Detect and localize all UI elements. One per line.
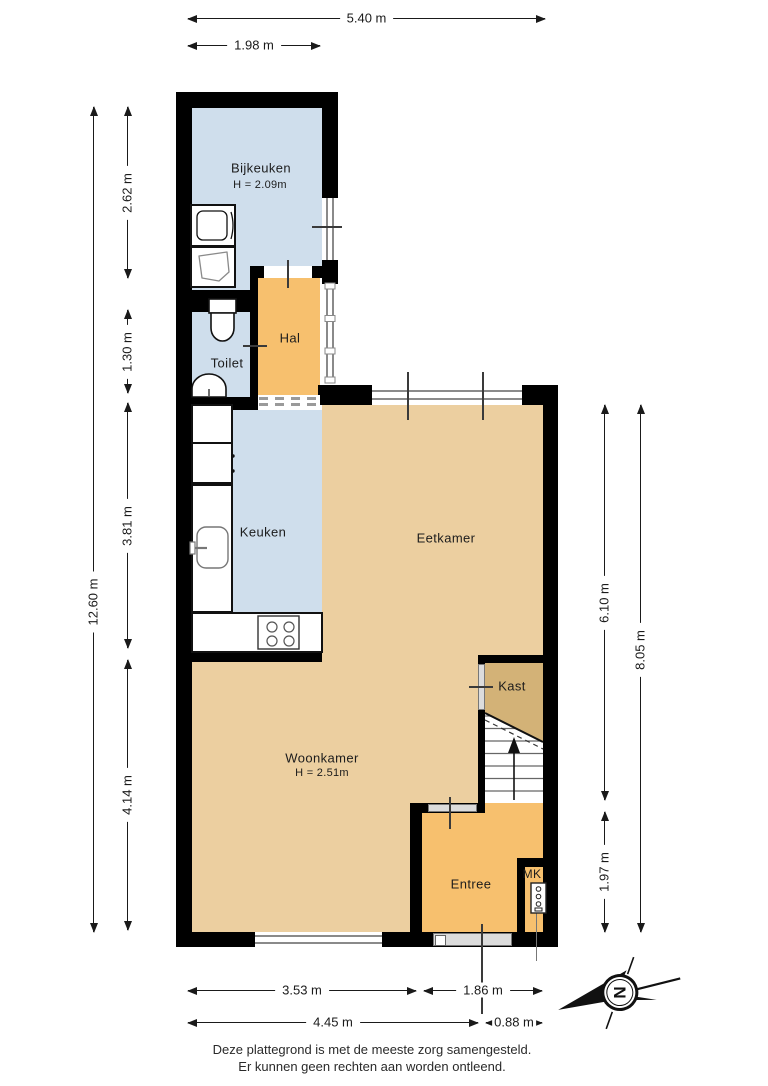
room-label-woonkamer: Woonkamer [285,751,358,766]
door-mullions [325,283,335,383]
arrow-down-icon [601,791,609,801]
arrow-right-icon [533,987,543,995]
fixtures-layer [0,0,768,1086]
arrow-down-icon [124,269,132,279]
room-label-toilet: Toilet [211,356,244,371]
arrow-down-icon [124,921,132,931]
arrow-right-icon [536,15,546,23]
arrow-left-icon [423,987,433,995]
arrow-down-icon [124,384,132,394]
dim-left-bijkeuken: 2.62 m [127,107,128,278]
arrow-up-icon [637,404,645,414]
dim-label: 1.86 m [456,983,510,998]
dim-label: 1.30 m [120,325,135,379]
arrow-up-icon [90,106,98,116]
room-label-eetkamer: Eetkamer [417,531,476,546]
dim-label: 8.05 m [633,623,648,677]
dim-label: 3.53 m [275,983,329,998]
dim-bottom-total: 4.45 m [188,1022,478,1023]
arrow-right-icon [311,42,321,50]
dim-label: 6.10 m [597,576,612,630]
arrow-down-icon [124,639,132,649]
arrow-up-icon [124,402,132,412]
arrow-up-icon [124,106,132,116]
room-label-bijkeuken: Bijkeuken [231,161,291,176]
dim-left-woonkamer: 4.14 m [127,660,128,930]
arrow-left-icon [187,15,197,23]
dim-right-eetkamer: 6.10 m [604,405,605,800]
room-label-kast: Kast [498,679,526,694]
arrow-down-icon [601,923,609,933]
dim-label: 1.98 m [227,38,281,53]
arrow-right-icon [407,987,417,995]
dim-left-total: 12.60 m [93,107,94,932]
dim-label: 1.97 m [597,845,612,899]
compass-rose: N [552,948,692,1038]
dim-label: 4.14 m [120,768,135,822]
disclaimer-line-2: Er kunnen geen rechten aan worden ontlee… [238,1059,505,1074]
dim-label: 12.60 m [86,572,101,633]
room-label-entree: Entree [451,877,492,892]
compass-north-label: N [610,986,629,998]
arrow-up-icon [601,811,609,821]
dim-top-total: 5.40 m [188,18,545,19]
arrow-up-icon [124,309,132,319]
arrow-left-icon [187,1019,197,1027]
dim-right-total: 8.05 m [640,405,641,932]
room-label-keuken: Keuken [240,525,287,540]
dim-left-keuken: 3.81 m [127,403,128,648]
toilet-fixture [209,299,236,341]
room-label-mk: MK [523,867,542,881]
dim-label: 3.81 m [120,499,135,553]
dim-label: 2.62 m [120,166,135,220]
dim-top-annex: 1.98 m [188,45,320,46]
dim-label: 5.40 m [340,11,394,26]
dim-left-toilet: 1.30 m [127,310,128,393]
stove-fixture [258,616,299,649]
washing-machine-fixture [191,205,235,246]
arrow-down-icon [90,923,98,933]
meter-box-fixture [531,883,546,913]
dim-label: 0.88 m [492,1015,536,1030]
arrow-left-icon [187,42,197,50]
dim-right-entree: 1.97 m [604,812,605,932]
arrow-right-icon [469,1019,479,1027]
arrow-left-icon [187,987,197,995]
arrow-up-icon [124,659,132,669]
room-height-bijkeuken: H = 2.09m [233,179,287,191]
room-height-woonkamer: H = 2.51m [295,767,349,779]
dim-bottom-woonkamer: 3.53 m [188,990,416,991]
dim-label: 4.45 m [306,1015,360,1030]
dim-bottom-door: 0.88 m [486,1022,542,1023]
room-label-hal: Hal [280,331,301,346]
utility-sink-fixture [191,247,235,287]
corner-basin-fixture [192,374,226,397]
disclaimer-line-1: Deze plattegrond is met de meeste zorg s… [213,1042,532,1057]
arrow-up-icon [601,404,609,414]
floorplan-canvas: Bijkeuken H = 2.09m Toilet Hal Keuken Ee… [0,0,768,1086]
dim-bottom-entree: 1.86 m [424,990,542,991]
arrow-down-icon [637,923,645,933]
